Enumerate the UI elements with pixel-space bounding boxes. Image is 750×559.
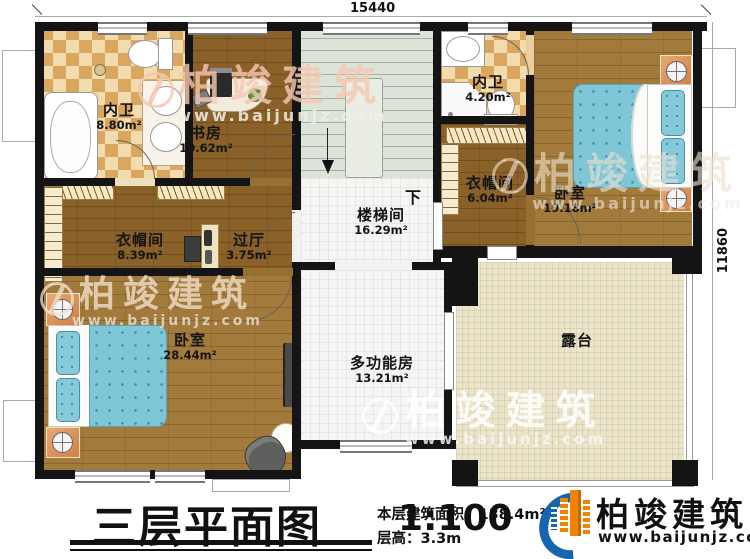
room-name: 内卫 xyxy=(96,102,141,119)
room-name: 楼梯间 xyxy=(354,207,407,224)
floor-height-value: 3.3m xyxy=(421,531,462,547)
floor-plan-canvas: 内卫 8.80m² 书房 10.62m² 楼梯间 16.29m² 下 内卫 4.… xyxy=(0,0,750,559)
room-label-study: 书房 10.62m² xyxy=(179,125,232,155)
railing-line xyxy=(456,480,694,481)
room-area: 8.39m² xyxy=(116,249,164,262)
wall-exterior-right xyxy=(693,22,702,254)
window xyxy=(75,470,150,483)
room-name: 多功能房 xyxy=(350,355,414,372)
wall-multi-terrace-lower xyxy=(444,388,452,449)
opening-stairs-multi xyxy=(335,262,412,270)
room-label-bedroom1: 卧室 28.44m² xyxy=(163,332,216,362)
wall-bath2-bottom xyxy=(433,116,534,124)
room-area: 8.80m² xyxy=(96,119,141,132)
lamp xyxy=(52,299,73,320)
wall-multi-terrace-upper xyxy=(444,262,452,312)
room-name: 露台 xyxy=(561,332,593,349)
title-underline-thin xyxy=(70,549,372,551)
room-label-bath1: 内卫 8.80m² xyxy=(96,102,141,132)
dimension-tick xyxy=(32,4,43,15)
plant xyxy=(248,88,262,102)
door-opening-bath1 xyxy=(115,178,155,186)
pillow xyxy=(661,90,685,136)
pillow xyxy=(56,331,80,375)
toilet-tank xyxy=(158,38,173,70)
ceiling-lamp-icon xyxy=(94,64,106,76)
brand-logo-building-icon xyxy=(551,504,557,530)
floor-area-row: 本层建筑面积：138.4m² xyxy=(377,503,546,524)
sliding-door-multi-terrace xyxy=(444,312,454,390)
room-area: 6.04m² xyxy=(466,192,514,205)
terrace-post xyxy=(452,258,478,306)
room-area: 19.18m² xyxy=(543,202,596,215)
av-cabinet xyxy=(184,236,201,262)
terrace-post xyxy=(672,460,698,486)
window xyxy=(572,22,652,35)
door-opening-bedroom2 xyxy=(526,195,534,245)
room-area: 4.20m² xyxy=(465,91,510,104)
door-leaf-corridor xyxy=(433,202,443,250)
floor-height-row: 层高：3.3m xyxy=(377,527,461,548)
dimension-line-right xyxy=(712,22,713,480)
room-label-closet2: 衣帽间 6.04m² xyxy=(466,175,514,205)
floor-area-label: 本层建筑面积： xyxy=(377,507,479,523)
terrace-post xyxy=(672,246,702,274)
wall-bedroom1-multi xyxy=(292,270,301,479)
bed xyxy=(573,84,690,186)
pillow xyxy=(56,378,80,422)
dimension-line-top xyxy=(35,16,707,17)
sink xyxy=(446,36,480,62)
room-name: 书房 xyxy=(179,125,232,142)
bathtub-basin xyxy=(50,101,91,173)
dimension-right-value: 11860 xyxy=(716,228,731,273)
railing-line xyxy=(686,262,687,484)
wall-corridor-bottom xyxy=(437,246,702,258)
wall-study-stairs xyxy=(292,31,301,210)
lamp xyxy=(666,188,687,209)
window xyxy=(98,22,147,35)
room-name: 衣帽间 xyxy=(116,232,164,249)
railing-line xyxy=(456,486,694,487)
brand-logo-building-icon xyxy=(560,498,568,534)
floor-area-value: 138.4m² xyxy=(479,507,546,523)
lamp xyxy=(52,432,73,453)
room-area: 13.21m² xyxy=(350,372,414,385)
brand-logo-building-icon xyxy=(583,500,590,534)
floor-height-label: 层高： xyxy=(377,531,421,547)
room-label-bedroom2: 卧室 19.18m² xyxy=(543,185,596,215)
door-leaf-terrace xyxy=(487,246,517,260)
room-name: 过厅 xyxy=(226,232,271,249)
pillow xyxy=(661,138,685,184)
shelf-rack xyxy=(441,143,459,215)
dimension-tick xyxy=(701,4,712,15)
room-name: 卧室 xyxy=(543,185,596,202)
window xyxy=(468,22,508,35)
brand-logo-building-icon xyxy=(570,490,581,536)
floor-terrace xyxy=(456,262,684,480)
sink xyxy=(150,122,182,152)
door-opening-bedroom1 xyxy=(243,268,293,276)
wall-bath1-study xyxy=(185,31,193,178)
window xyxy=(340,440,412,453)
computer xyxy=(210,68,232,97)
window xyxy=(323,22,420,35)
dimension-top-value: 15440 xyxy=(350,1,395,16)
room-name: 卧室 xyxy=(163,332,216,349)
room-label-closet1: 衣帽间 8.39m² xyxy=(116,232,164,262)
window xyxy=(188,22,267,35)
terrace-post xyxy=(452,460,478,486)
toilet xyxy=(128,40,162,68)
stair-landing xyxy=(345,78,383,178)
room-name: 衣帽间 xyxy=(466,175,514,192)
stair-down-arrow-icon xyxy=(322,160,334,174)
room-area: 16.29m² xyxy=(354,224,407,237)
brand-logo: 柏竣建筑 www.baijunjz.com xyxy=(538,488,748,554)
railing-line xyxy=(692,262,693,484)
door-opening-study xyxy=(250,178,292,186)
bed-mattress xyxy=(89,325,167,427)
cabinet-item xyxy=(205,250,212,264)
stairs-down-label: 下 xyxy=(405,184,421,208)
sink xyxy=(150,86,182,116)
room-label-hall: 过厅 3.75m² xyxy=(226,232,271,262)
lamp xyxy=(666,61,687,82)
room-label-multi: 多功能房 13.21m² xyxy=(350,355,414,385)
room-label-stairwell: 楼梯间 16.29m² xyxy=(354,207,407,237)
stair-arrow-stem xyxy=(327,128,328,160)
cabinet-item xyxy=(204,230,212,246)
bed xyxy=(48,325,165,425)
plan-title: 三层平面图 xyxy=(92,491,322,555)
room-name: 内卫 xyxy=(465,74,510,91)
window xyxy=(155,470,205,483)
exterior-ledge xyxy=(3,400,39,462)
room-label-bath2: 内卫 4.20m² xyxy=(465,74,510,104)
wall-exterior-left xyxy=(35,22,44,479)
brand-site: www.baijunjz.com xyxy=(598,528,750,546)
room-area: 28.44m² xyxy=(163,349,216,362)
exterior-ledge xyxy=(701,48,736,108)
wardrobe-rail xyxy=(446,127,530,144)
room-area: 10.62m² xyxy=(179,142,232,155)
room-label-terrace: 露台 xyxy=(561,332,593,349)
title-underline xyxy=(70,540,372,545)
room-area: 3.75m² xyxy=(226,249,271,262)
